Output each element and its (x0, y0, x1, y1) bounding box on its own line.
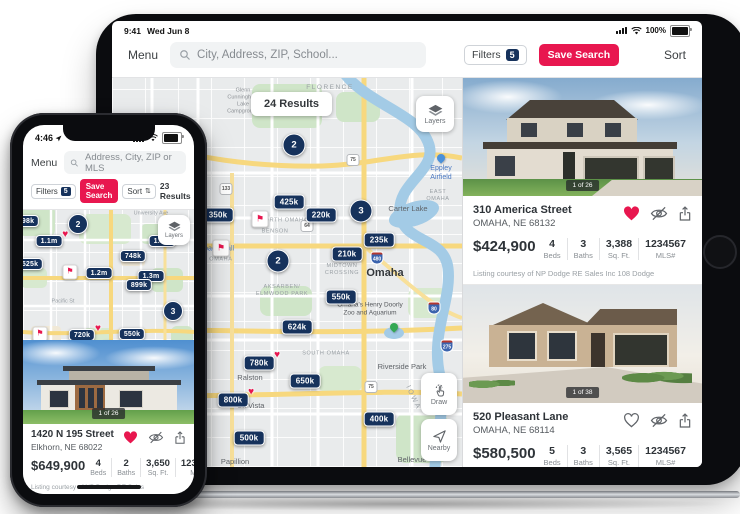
photo-art (507, 331, 537, 361)
map-cluster-pin[interactable]: 2 (68, 214, 88, 234)
map-price-pin[interactable]: 235k (364, 233, 395, 248)
ipad-home-button[interactable] (703, 235, 737, 269)
sort-button[interactable]: Sort ⇅ (122, 184, 156, 199)
stat-label: Beds (544, 458, 561, 467)
listing-stats: 4Beds 2Baths 3,650Sq. Ft. 1234567MLS# (85, 458, 194, 477)
map-price-pin[interactable]: 350k (203, 208, 234, 223)
search-icon (179, 49, 191, 61)
results-count: 23 Results (160, 181, 191, 201)
share-button[interactable] (678, 413, 692, 429)
listing-courtesy: Listing courtesy of NP Dodge RE Sales In… (473, 269, 692, 278)
road-shield: 75 (365, 381, 378, 393)
share-button[interactable] (678, 206, 692, 222)
filters-count-badge: 5 (506, 49, 519, 61)
ipad-nav-bar: Menu City, Address, ZIP, School... Filte… (112, 37, 702, 78)
favorite-heart-icon: ♥ (62, 229, 68, 240)
home-indicator[interactable] (77, 485, 141, 489)
stat-label: MLS# (645, 458, 686, 467)
iphone-map[interactable]: Layers University AvePacific St498k21.1m… (23, 210, 194, 340)
open-house-flag-pin[interactable]: ⚑ (213, 240, 230, 257)
listing-card[interactable]: 1 of 38 520 Pleasant Lane OMAHA, NE 6811… (463, 284, 702, 467)
photo-art (79, 388, 85, 408)
hide-listing-button[interactable] (650, 413, 668, 428)
map-price-pin[interactable]: 650k (290, 374, 321, 389)
layers-icon (428, 104, 443, 117)
iphone-filter-toolbar: Filters 5 Save Search Sort ⇅ 23 Results (23, 179, 194, 210)
stat-label: Baths (574, 251, 593, 260)
stat-value: 3 (574, 238, 593, 250)
map-price-pin[interactable]: 500k (234, 431, 265, 446)
stat-value: 5 (544, 445, 561, 457)
status-date: Wed Jun 8 (147, 26, 189, 36)
map-price-pin[interactable]: 1.2m (86, 267, 113, 279)
photo-art (605, 123, 621, 137)
iphone-screen: 4:46 Menu Address, City, ZIP or MLS (23, 125, 194, 494)
favorite-heart-icon: ♥ (95, 323, 101, 334)
stat-label: Baths (117, 470, 135, 477)
stat-value: 3 (574, 445, 593, 457)
photo-art (547, 331, 577, 361)
map-cluster-pin[interactable]: 2 (283, 134, 306, 157)
photo-art (591, 333, 605, 367)
stat-value: 1234567 (181, 458, 194, 469)
map-price-pin[interactable]: 624k (282, 320, 313, 335)
nearby-button[interactable]: Nearby (421, 419, 457, 461)
ipad-status-bar: 9:41 Wed Jun 8 100% (112, 21, 702, 37)
map-price-pin[interactable]: 1.1m♥ (36, 235, 63, 247)
road-shield: 75 (347, 154, 360, 166)
map-price-pin[interactable]: 780k♥ (244, 356, 275, 371)
map-price-pin[interactable]: 720k♥ (69, 329, 95, 340)
stat-label: Beds (544, 251, 561, 260)
stat-value: 1234567 (645, 445, 686, 457)
photo-counter-badge: 1 of 26 (92, 408, 126, 419)
status-time: 9:41 (124, 26, 141, 36)
map-price-pin[interactable]: 400k (364, 412, 395, 427)
search-input[interactable]: City, Address, ZIP, School... (170, 42, 426, 68)
stat-label: Sq. Ft. (146, 470, 170, 477)
favorite-heart-button[interactable] (123, 431, 138, 444)
sort-arrows-icon: ⇅ (145, 187, 151, 195)
photo-art (521, 123, 537, 137)
layers-icon (168, 221, 181, 232)
listing-price: $649,900 (31, 458, 85, 473)
photo-art (49, 390, 69, 408)
sort-label: Sort (127, 187, 142, 196)
photo-art (97, 388, 103, 408)
map-cluster-pin[interactable]: 2 (267, 250, 290, 273)
photo-art (483, 142, 677, 149)
photo-art (23, 340, 101, 366)
share-button[interactable] (174, 431, 186, 445)
search-icon (70, 158, 79, 168)
map-price-pin[interactable]: 498k (23, 215, 39, 227)
photo-art (567, 123, 583, 137)
iphone-device: 4:46 Menu Address, City, ZIP or MLS (10, 113, 207, 507)
open-house-flag-pin[interactable]: ⚑ (33, 327, 48, 341)
open-house-flag-pin[interactable]: ⚑ (63, 265, 78, 280)
search-placeholder: Address, City, ZIP or MLS (85, 152, 180, 174)
hide-listing-button[interactable] (650, 206, 668, 221)
stat-label: MLS# (645, 251, 686, 260)
layers-label: Layers (165, 233, 183, 239)
photo-counter-badge: 1 of 38 (566, 387, 600, 398)
listing-card[interactable]: 1420 N 195 Street Elkhorn, NE 68022 $649… (23, 424, 194, 494)
search-input[interactable]: Address, City, ZIP or MLS (64, 151, 186, 174)
photo-art (88, 388, 94, 408)
stat-label: Sq. Ft. (606, 458, 632, 467)
stat-value: 4 (90, 458, 106, 469)
nearby-label: Nearby (428, 445, 451, 452)
road-shield: 133 (220, 183, 233, 195)
listing-city: OMAHA, NE 68132 (473, 218, 572, 229)
hide-listing-button[interactable] (148, 431, 164, 444)
layers-label: Layers (424, 118, 445, 125)
stat-value: 2 (117, 458, 135, 469)
map-price-pin[interactable]: 210k (332, 247, 363, 262)
battery-icon (162, 132, 182, 144)
draw-label: Draw (431, 399, 447, 406)
favorite-heart-icon: ♥ (274, 350, 280, 361)
iphone-nav-bar: Menu Address, City, ZIP or MLS (23, 148, 194, 179)
save-search-button[interactable]: Save Search (80, 179, 119, 203)
listing-stats: 4Beds 3Baths 3,388Sq. Ft. 1234567MLS# (538, 238, 692, 260)
filters-count-badge: 5 (61, 187, 71, 196)
photo-art (495, 156, 515, 176)
photo-art (613, 333, 669, 367)
listing-address[interactable]: 310 America Street (473, 204, 572, 216)
photo-art (622, 367, 692, 385)
favorite-heart-button[interactable] (623, 413, 640, 428)
nearby-navigation-icon (432, 429, 447, 444)
battery-percent: 100% (646, 26, 666, 35)
photo-art (119, 390, 143, 408)
filters-button[interactable]: Filters 5 (464, 45, 527, 65)
photo-counter-badge: 1 of 26 (566, 180, 600, 191)
listing-price: $424,900 (473, 238, 536, 255)
favorite-heart-icon: ♥ (248, 387, 254, 398)
sort-button[interactable]: Sort (664, 48, 686, 62)
stat-value: 3,565 (606, 445, 632, 457)
road-shield: 480 (372, 253, 383, 264)
listing-stats: 5Beds 3Baths 3,565Sq. Ft. 1234567MLS# (538, 445, 692, 467)
stat-value: 4 (544, 238, 561, 250)
listing-photo[interactable]: 1 of 38 (463, 285, 702, 403)
listing-photo[interactable]: 1 of 26 (463, 78, 702, 196)
listing-card[interactable]: 1 of 26 310 America Street OMAHA, NE 681… (463, 78, 702, 284)
map-cluster-pin[interactable]: 3 (163, 301, 183, 321)
stat-value: 3,650 (146, 458, 170, 469)
layers-button[interactable]: Layers (416, 96, 454, 132)
listing-address[interactable]: 1420 N 195 Street (31, 429, 114, 440)
filters-label: Filters (472, 49, 501, 61)
favorite-heart-button[interactable] (623, 206, 640, 221)
stat-value: 1234567 (645, 238, 686, 250)
map-price-pin[interactable]: 425k (274, 195, 305, 210)
draw-gesture-icon (431, 382, 447, 398)
photo-art (563, 152, 575, 181)
listings-sidebar: 1 of 26 310 America Street OMAHA, NE 681… (462, 78, 702, 467)
wifi-icon (631, 27, 642, 35)
stat-label: MLS# (181, 470, 194, 477)
listing-price: $580,500 (473, 445, 536, 462)
search-placeholder: City, Address, ZIP, School... (197, 49, 338, 61)
listing-address[interactable]: 520 Pleasant Lane (473, 411, 568, 423)
filters-button[interactable]: Filters 5 (31, 184, 76, 199)
stat-value: 3,388 (606, 238, 632, 250)
map-cluster-pin[interactable]: 3 (350, 200, 373, 223)
listing-city: OMAHA, NE 68114 (473, 425, 568, 436)
save-search-button[interactable]: Save Search (539, 44, 619, 66)
draw-button[interactable]: Draw (421, 373, 457, 415)
map-price-pin[interactable]: 748k (120, 250, 146, 262)
menu-button[interactable]: Menu (128, 48, 158, 62)
map-price-pin[interactable]: 550k (326, 290, 357, 305)
listing-photo[interactable]: 1 of 26 (23, 340, 194, 424)
stat-label: Baths (574, 458, 593, 467)
cellular-signal-icon (616, 27, 627, 35)
map-price-pin[interactable]: 550k (119, 328, 145, 340)
photo-art (469, 377, 515, 389)
devices-mockup-scene: 9:41 Wed Jun 8 100% Menu City, Address, … (0, 0, 740, 514)
road-shield: 80 (429, 303, 440, 314)
stat-label: Sq. Ft. (606, 251, 632, 260)
open-house-flag-pin[interactable]: ⚑ (252, 211, 269, 228)
menu-button[interactable]: Menu (31, 157, 57, 169)
road-shield: 275 (442, 341, 453, 352)
battery-icon (670, 25, 690, 37)
iphone-notch (63, 125, 155, 141)
map-price-pin[interactable]: 220k (306, 208, 337, 223)
map-price-pin[interactable]: 800k♥ (218, 393, 249, 408)
status-time: 4:46 (35, 133, 53, 143)
results-count-pill: 24 Results (251, 92, 332, 116)
map-price-pin[interactable]: 899k (126, 279, 152, 291)
layers-button[interactable]: Layers (158, 215, 190, 245)
listing-city: Elkhorn, NE 68022 (31, 442, 114, 452)
stat-label: Beds (90, 470, 106, 477)
filters-label: Filters (36, 187, 58, 196)
map-price-pin[interactable]: 525k (23, 258, 43, 270)
location-arrow-icon (55, 135, 62, 142)
